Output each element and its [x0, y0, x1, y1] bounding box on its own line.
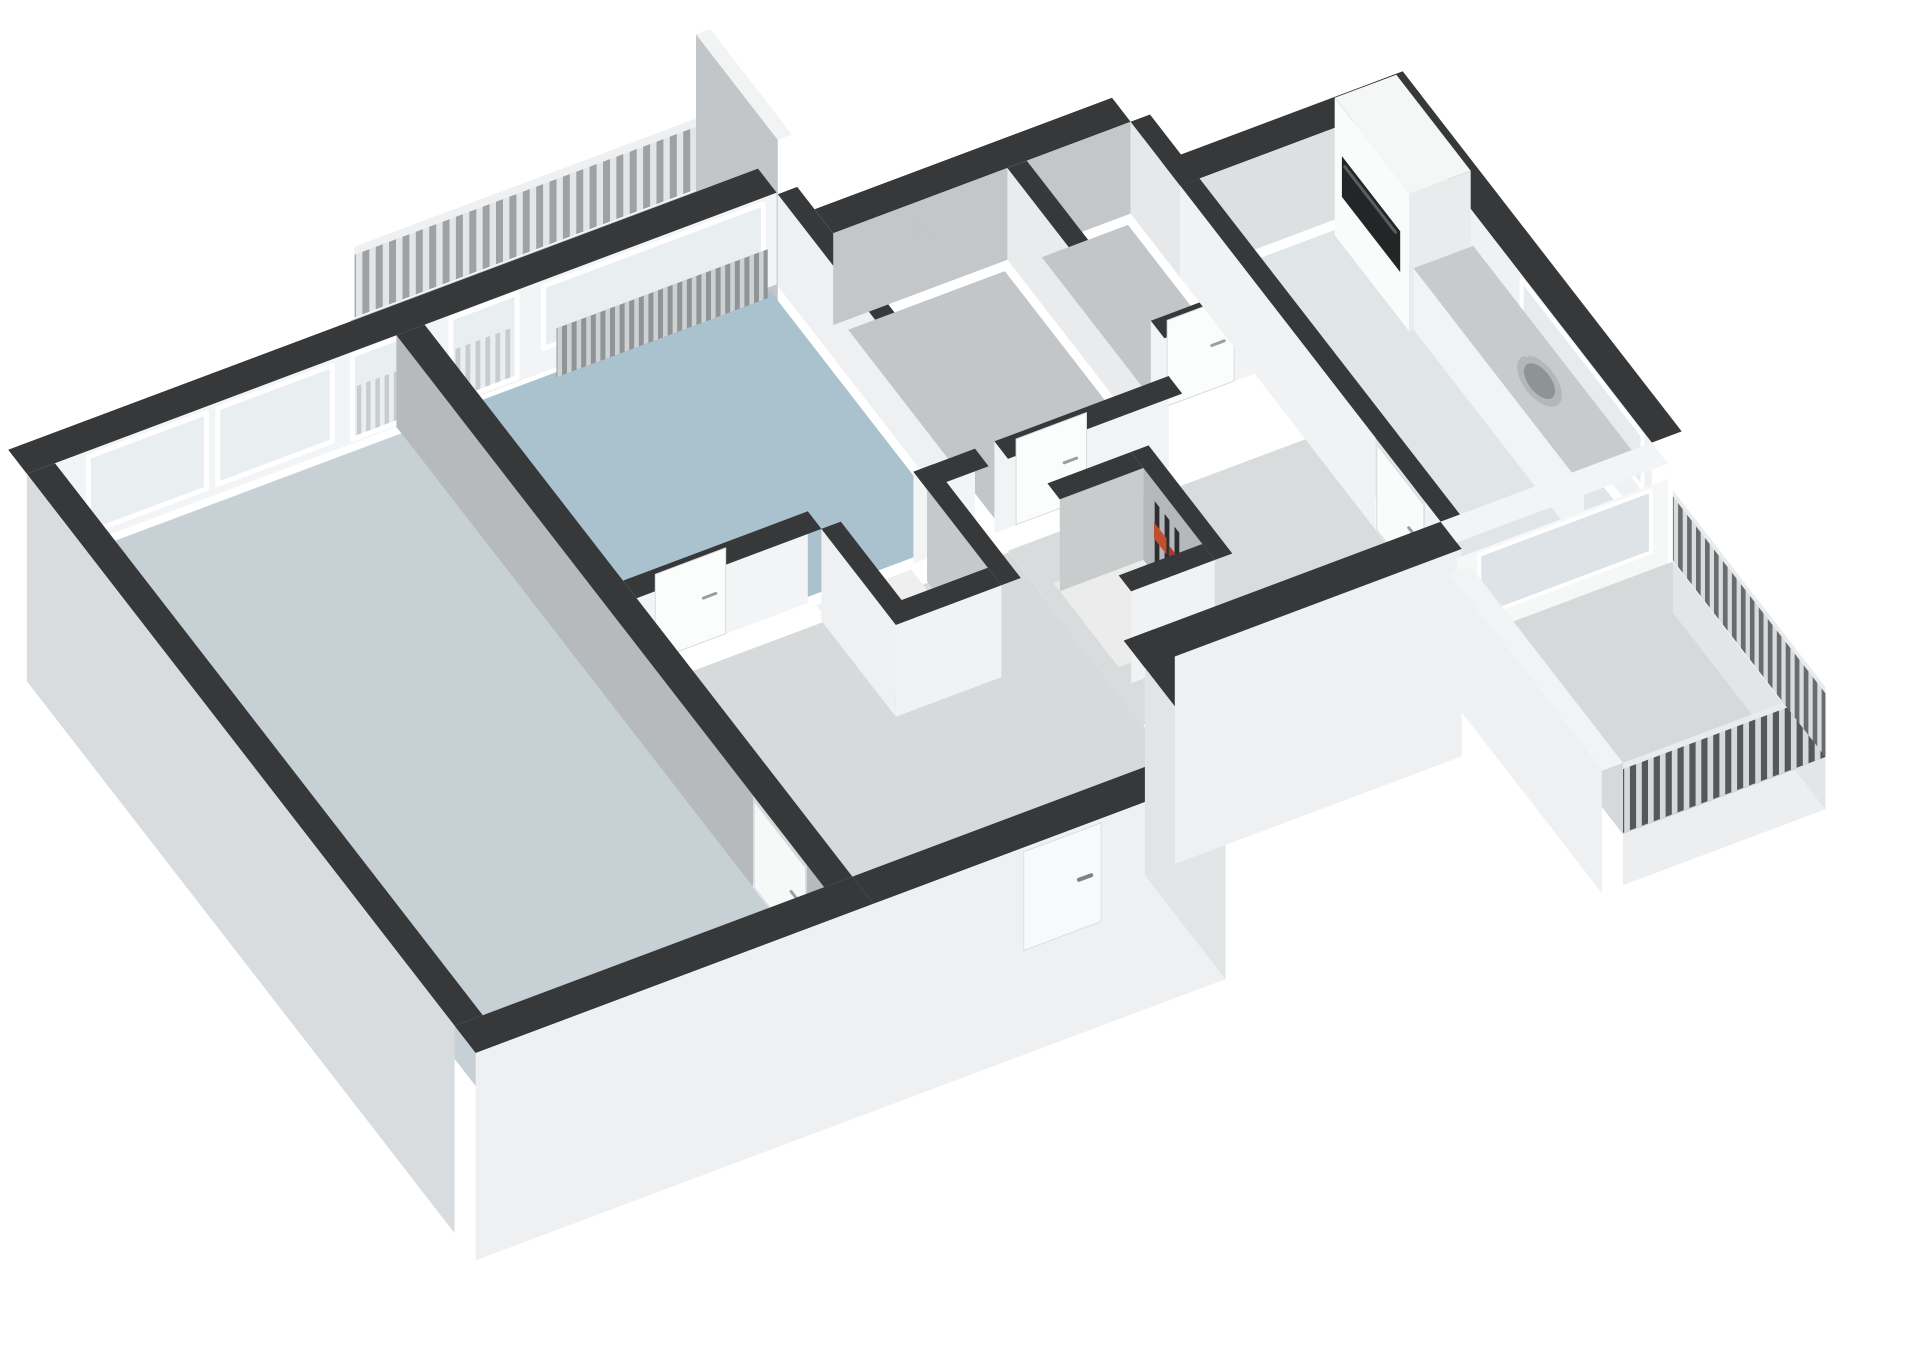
north-balcony-railing-slats: [409, 228, 415, 297]
north-balcony-railing-slats: [369, 243, 375, 312]
south-balcony-railing-east-slats: [1781, 634, 1785, 706]
south-balcony-railing-slats: [1708, 733, 1714, 802]
south-balcony-railing-slats: [1696, 737, 1702, 806]
south-balcony-railing-east-slats: [1790, 645, 1794, 717]
north-balcony-railing-slats: [503, 193, 509, 262]
bedroom-balcony-door-slats: [476, 340, 481, 391]
bedroom-radiator-slats: [692, 276, 697, 327]
north-balcony-railing-slats: [690, 123, 696, 192]
bedroom-radiator-slats: [596, 312, 601, 363]
bedroom-radiator-slats: [701, 272, 706, 323]
south-balcony-railing-slats: [1779, 706, 1785, 775]
north-balcony-railing-slats: [476, 203, 482, 272]
south-balcony-railing-east-slats: [1755, 599, 1759, 671]
north-balcony-railing-slats: [543, 178, 549, 247]
south-balcony-railing-east-slats: [1728, 564, 1732, 636]
bedroom-radiator-slats: [625, 301, 630, 352]
bedroom-radiator-slats: [759, 251, 764, 302]
south-balcony-railing-slats: [1648, 755, 1654, 824]
bedroom-radiator-slats: [711, 269, 716, 320]
north-balcony-railing-slats: [677, 128, 683, 197]
south-balcony-railing-east-slats: [1808, 668, 1812, 740]
north-balcony-railing-slats: [583, 163, 589, 232]
north-balcony-railing-slats: [436, 218, 442, 287]
north-balcony-railing-slats: [490, 198, 496, 267]
3d-floorplan-stage: [0, 0, 1920, 1358]
bedroom-radiator-slats: [663, 287, 668, 338]
bedroom-radiator-slats: [682, 280, 687, 331]
south-balcony-railing-slats: [1743, 719, 1749, 788]
bedroom-radiator-slats: [730, 262, 735, 313]
south-balcony-railing-east-slats: [1737, 576, 1741, 648]
bedroom-balcony-door-slats: [485, 336, 490, 387]
3d-floor-plan: [0, 0, 1920, 1358]
south-balcony-railing-slats: [1636, 759, 1642, 828]
living-balcony-door-slats: [357, 384, 361, 435]
north-balcony-railing-slats: [570, 168, 577, 237]
bedroom-radiator-slats: [586, 316, 591, 367]
south-balcony-railing-slats: [1755, 715, 1761, 784]
north-balcony-railing-slats: [557, 173, 563, 242]
north-balcony-railing-slats: [663, 133, 669, 202]
south-balcony-railing-slats: [1684, 741, 1690, 810]
bedroom-radiator-slats: [721, 265, 726, 316]
bedroom-radiator-slats: [567, 323, 572, 374]
south-balcony-railing-east-slats: [1764, 611, 1768, 683]
north-balcony-railing-slats: [516, 188, 522, 257]
south-balcony-railing-slats: [1767, 710, 1773, 779]
bedroom-radiator-slats: [605, 308, 610, 359]
south-balcony-railing-east-slats: [1817, 680, 1821, 752]
bedroom-balcony-door-slats: [495, 332, 500, 383]
north-balcony-railing-slats: [637, 143, 643, 212]
bedroom-radiator-slats: [673, 283, 678, 334]
north-balcony-railing-slats: [383, 238, 389, 307]
north-balcony-railing-slats: [610, 153, 616, 222]
south-balcony-railing-east-slats: [1773, 622, 1777, 694]
south-balcony-railing-east-slats: [1799, 657, 1803, 729]
south-balcony-railing-slats: [1731, 724, 1737, 793]
south-balcony-railing-east-slats: [1701, 530, 1705, 602]
south-balcony-railing-east-slats: [1746, 587, 1750, 659]
bedroom-radiator-slats: [615, 305, 620, 356]
bedroom-radiator-slats: [653, 290, 658, 341]
bedroom-balcony-door-slats: [505, 329, 510, 380]
north-balcony-railing-slats: [530, 183, 537, 252]
north-balcony-railing-slats: [650, 138, 656, 207]
north-balcony-railing-slats: [356, 248, 363, 317]
south-balcony-railing-east-slats: [1719, 553, 1723, 625]
bedroom-radiator-slats: [749, 254, 754, 305]
bedroom-radiator-slats: [644, 294, 649, 345]
north-balcony-railing-slats: [423, 223, 429, 292]
living-balcony-door-slats: [385, 374, 389, 425]
north-balcony-railing-slats: [597, 158, 603, 227]
living-balcony-door-slats: [366, 381, 371, 432]
living-balcony-door-slats: [375, 377, 379, 428]
north-balcony-railing-slats: [463, 208, 469, 277]
south-balcony-railing-slats: [1719, 728, 1725, 797]
south-balcony-railing-slats: [1624, 764, 1630, 833]
south-balcony-railing-east-slats: [1683, 506, 1687, 578]
north-balcony-railing-slats: [623, 148, 629, 217]
south-balcony-railing-slats: [1660, 750, 1666, 819]
south-balcony-railing-east-slats: [1710, 541, 1714, 613]
north-balcony-railing-slats: [396, 233, 403, 302]
south-balcony-railing-slats: [1672, 746, 1678, 815]
bedroom-radiator-slats: [577, 319, 582, 370]
bedroom-radiator-slats: [634, 298, 639, 349]
north-balcony-railing-slats: [450, 213, 456, 282]
bedroom-radiator-slats: [740, 258, 745, 309]
bedroom-radiator-slats: [557, 326, 562, 377]
south-balcony-railing-east-slats: [1674, 495, 1678, 567]
south-balcony-railing-east-slats: [1692, 518, 1696, 590]
